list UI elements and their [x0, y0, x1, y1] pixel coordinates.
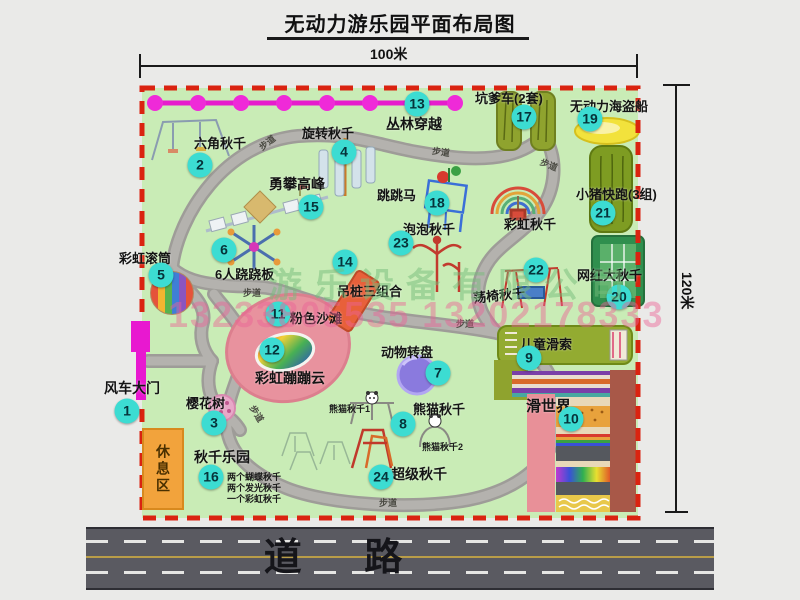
label-six-seat-seesaw: 6人跷跷板	[215, 264, 274, 283]
badge-5: 5	[149, 263, 174, 288]
badge-21: 21	[591, 201, 616, 226]
label-animal-turntable: 动物转盘	[381, 342, 433, 361]
trail-label: 步道	[431, 144, 451, 159]
label-jungle-crossing: 丛林穿越	[386, 114, 442, 134]
label-pink-beach: 粉色沙滩	[290, 308, 342, 327]
label-big-swing: 网红大秋千	[577, 265, 642, 284]
badge-3: 3	[202, 411, 227, 436]
badge-23: 23	[389, 231, 414, 256]
badge-22: 22	[524, 258, 549, 283]
badge-11: 11	[266, 302, 291, 327]
badge-17: 17	[512, 105, 537, 130]
dimension-top-label: 100米	[370, 44, 407, 64]
swing-park-notes: 两个蝴蝶秋千 两个发光秋千 一个彩虹秋千	[227, 472, 281, 505]
badge-18: 18	[425, 191, 450, 216]
rest-area-label: 休息区	[153, 444, 173, 495]
badge-14: 14	[333, 250, 358, 275]
trail-label: 步道	[456, 317, 474, 330]
label-hexagon-swing: 六角秋千	[194, 133, 246, 152]
badge-9: 9	[517, 346, 542, 371]
dimension-right-label: 120米	[677, 272, 697, 309]
swing-park-note-3: 一个彩虹秋千	[227, 494, 281, 505]
badge-16: 16	[199, 465, 224, 490]
badge-7: 7	[426, 361, 451, 386]
label-climbing-peak: 勇攀高峰	[269, 174, 325, 194]
label-swing-park: 秋千乐园	[194, 447, 250, 467]
badge-6: 6	[212, 238, 237, 263]
title-underline	[267, 37, 529, 40]
label-panda-swing-2: 熊猫秋千2	[422, 440, 463, 453]
label-panda-swing-1: 熊猫秋千1	[329, 402, 370, 415]
label-piggy-run: 小猪快跑(3组)	[576, 184, 657, 203]
badge-20: 20	[607, 285, 632, 310]
label-kart-track: 坑爹车(2套)	[475, 88, 543, 107]
badge-15: 15	[299, 195, 324, 220]
badge-19: 19	[578, 107, 603, 132]
label-windmill-gate: 风车大门	[104, 378, 160, 398]
badge-8: 8	[391, 412, 416, 437]
park-layout-map: 无动力游乐园平面布局图 100米 120米	[0, 0, 800, 600]
badge-2: 2	[188, 153, 213, 178]
label-cherry-tree: 樱花树	[186, 393, 225, 412]
label-panda-swing: 熊猫秋千	[413, 399, 465, 418]
swing-park-note-1: 两个蝴蝶秋千	[227, 472, 281, 483]
page-title: 无动力游乐园平面布局图	[0, 8, 800, 37]
label-super-swing: 超级秋千	[391, 464, 447, 484]
badge-12: 12	[260, 338, 285, 363]
label-rainbow-bounce-cloud: 彩虹蹦蹦云	[255, 368, 325, 388]
label-rainbow-arch-swing: 彩虹秋千	[504, 214, 556, 233]
trail-label: 步道	[243, 286, 261, 299]
swing-park-note-2: 两个发光秋千	[227, 483, 281, 494]
badge-24: 24	[369, 465, 394, 490]
trail-label: 步道	[379, 496, 397, 509]
label-jumping-horse: 跳跳马	[377, 185, 416, 204]
badge-13: 13	[405, 92, 430, 117]
badge-1: 1	[115, 399, 140, 424]
label-hanging-post-combo: 吊桩三组合	[337, 281, 402, 300]
badge-4: 4	[332, 140, 357, 165]
rest-area: 休息区	[142, 428, 184, 510]
badge-10: 10	[559, 407, 584, 432]
